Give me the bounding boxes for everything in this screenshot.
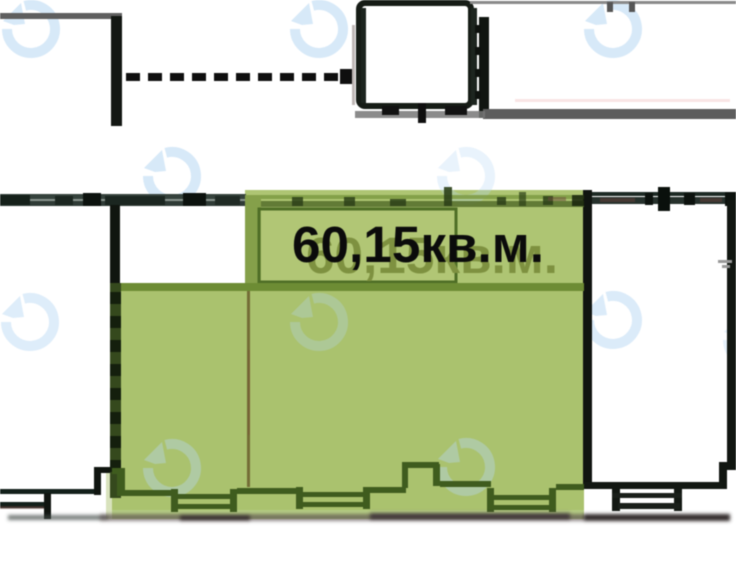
svg-text:60,15кв.м.: 60,15кв.м.	[292, 216, 544, 273]
